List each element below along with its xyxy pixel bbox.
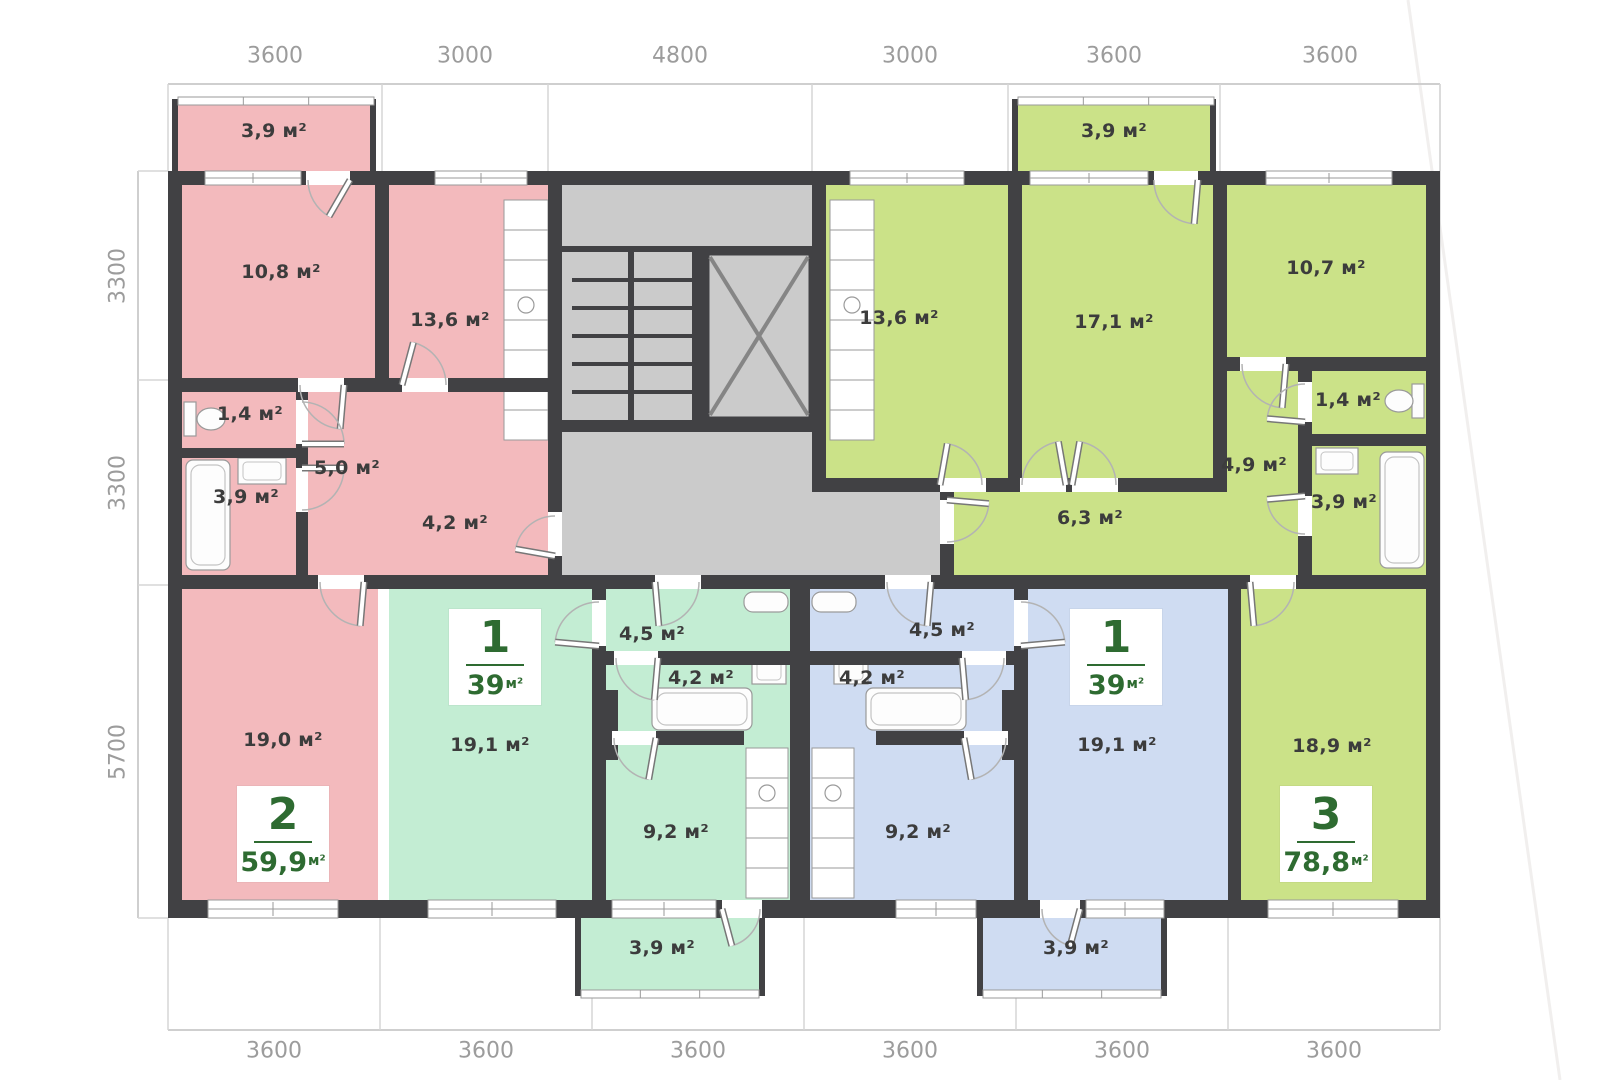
wall (1213, 185, 1227, 478)
floor-plan: 3600 3000 4800 3000 3600 3600 3300 3300 … (0, 0, 1620, 1080)
wall (592, 690, 618, 760)
wall (876, 731, 964, 745)
kitchen-cabinets (746, 838, 788, 868)
balcony-glazing (178, 97, 374, 105)
door-opening (614, 651, 658, 665)
door-opening (402, 378, 448, 392)
kitchen-cabinets (504, 290, 548, 320)
wall (296, 512, 308, 575)
door-opening (612, 731, 656, 745)
room-area-label-living: 19,0 м² (243, 729, 322, 751)
bathtub (652, 688, 752, 730)
wall (182, 448, 296, 458)
badge-divider (466, 664, 524, 666)
wall (168, 171, 1440, 185)
dimension-label-left: 3300 (106, 455, 131, 511)
room-area-label-living: 19,1 м² (450, 734, 529, 756)
door-opening (1298, 496, 1312, 536)
kitchen-cabinets (830, 230, 874, 260)
door-opening (962, 651, 1006, 665)
room-area-label-kitchen: 13,6 м² (859, 307, 938, 329)
kitchen-cabinets (830, 410, 874, 440)
dimension-label-bottom: 3600 (670, 1039, 726, 1064)
bathtub (866, 688, 966, 730)
door-opening (940, 478, 986, 492)
bathtub (186, 460, 230, 570)
kitchen-cabinets (504, 350, 548, 380)
wall (592, 589, 606, 600)
dimension-label-top: 3000 (437, 44, 493, 69)
wall (1296, 575, 1440, 589)
apartment-total-area: 39м² (1088, 671, 1144, 699)
door-opening (1072, 478, 1118, 492)
room-area-label-bathroom: 3,9 м² (1311, 491, 1377, 513)
dimension-label-top: 4800 (652, 44, 708, 69)
door-opening (1240, 357, 1286, 371)
balcony-glazing (983, 990, 1161, 998)
kitchen-cabinets (504, 230, 548, 260)
wall (606, 651, 614, 665)
room-area-label-hall: 5,0 м² (314, 457, 380, 479)
door-opening (298, 378, 344, 392)
door-opening (1154, 171, 1198, 185)
wall (1228, 589, 1241, 900)
door-opening (318, 575, 364, 589)
bathtub (1380, 452, 1424, 568)
room-area-label-bedroom: 10,7 м² (1286, 257, 1365, 279)
apartment-total-area: 78,8м² (1283, 848, 1368, 876)
door-opening (722, 900, 762, 918)
room-area-label-hall: 4,5 м² (619, 623, 685, 645)
wall (1426, 185, 1440, 900)
wall (548, 556, 562, 575)
door-opening (964, 731, 1008, 745)
wardrobe (812, 592, 856, 612)
door-opening (296, 468, 308, 512)
room-area-label-kitchen: 9,2 м² (643, 821, 709, 843)
wall (1210, 99, 1216, 171)
wall (344, 378, 402, 392)
badge-divider (1297, 841, 1355, 843)
kitchen-cabinets (830, 200, 874, 230)
door-opening (592, 600, 606, 646)
apartment-badge-1room-left[interactable]: 1 39м² (449, 609, 541, 705)
wall (1006, 651, 1014, 665)
kitchen-cabinets (812, 748, 854, 778)
dimension-label-bottom: 3600 (246, 1039, 302, 1064)
wardrobe (744, 592, 788, 612)
room-area-label-wc: 1,4 м² (1315, 389, 1381, 411)
wall (977, 918, 983, 996)
room-area-label-bathroom: 3,9 м² (213, 486, 279, 508)
door-opening (940, 500, 954, 544)
room-area-label-bedroom2: 18,9 м² (1292, 735, 1371, 757)
wall (658, 651, 790, 665)
wall (656, 731, 744, 745)
wall (701, 575, 885, 589)
kitchen-cabinets (746, 778, 788, 808)
apartment-badge-2rooms[interactable]: 2 59,9м² (237, 786, 329, 882)
toilet (1412, 384, 1424, 418)
kitchen-cabinets (746, 748, 788, 778)
wall (172, 99, 178, 171)
wall (296, 444, 308, 468)
kitchen-cabinets (812, 838, 854, 868)
room-area-label-balcony: 3,9 м² (1043, 937, 1109, 959)
room-area-label-hall: 4,9 м² (1221, 454, 1287, 476)
floor-plan-drawing (0, 0, 1620, 1080)
toilet (1385, 390, 1413, 412)
wall (168, 575, 318, 589)
wall (628, 252, 634, 420)
dimension-label-top: 3600 (1086, 44, 1142, 69)
room-area-label-bathroom: 4,2 м² (839, 667, 905, 689)
wall (375, 185, 389, 378)
room-area-label-kitchen: 9,2 м² (885, 821, 951, 843)
apartment-total-area: 59,9м² (240, 848, 325, 876)
badge-divider (1087, 664, 1145, 666)
room-area-label-corridor: 6,3 м² (1057, 507, 1123, 529)
wall (759, 918, 765, 996)
room-area-label-bathroom: 4,2 м² (668, 667, 734, 689)
apartment-number: 3 (1311, 793, 1342, 837)
wall (592, 646, 606, 900)
room-area-label-wc: 1,4 м² (217, 403, 283, 425)
wall (1008, 185, 1022, 478)
wall (986, 478, 1020, 492)
apartment-total-area: 39м² (467, 671, 523, 699)
dimension-label-top: 3600 (1302, 44, 1358, 69)
wall (1312, 434, 1426, 446)
wall (1298, 536, 1312, 575)
wall (826, 478, 940, 492)
wall (1298, 371, 1312, 382)
wall (364, 575, 655, 589)
wall (1161, 918, 1167, 996)
door-opening (1040, 900, 1080, 918)
wall (1118, 478, 1227, 492)
wall (940, 544, 954, 575)
apartment-number: 2 (268, 793, 299, 837)
apartment-number: 1 (480, 616, 511, 660)
wall (931, 575, 1250, 589)
room-area-label-kitchen: 13,6 м² (410, 309, 489, 331)
wall (168, 900, 1440, 918)
wall (370, 99, 376, 171)
dimension-label-bottom: 3600 (1094, 1039, 1150, 1064)
kitchen-cabinets (830, 260, 874, 290)
wall (1014, 589, 1028, 600)
kitchen-cabinets (504, 260, 548, 290)
common-corridor (562, 432, 826, 575)
apartment-number: 1 (1101, 616, 1132, 660)
door-opening (655, 575, 701, 589)
room-area-label-balcony: 3,9 м² (629, 937, 695, 959)
kitchen-cabinets (812, 778, 854, 808)
room-area-label-bedroom: 10,8 м² (241, 261, 320, 283)
kitchen-cabinets (504, 200, 548, 230)
wall (1227, 357, 1240, 371)
door-opening (1250, 575, 1296, 589)
wall (548, 185, 562, 512)
kitchen-cabinets (812, 868, 854, 898)
wall (1012, 99, 1018, 171)
balcony-glazing (581, 990, 759, 998)
kitchen-cabinets (746, 868, 788, 898)
room-area-label-balcony: 3,9 м² (1081, 120, 1147, 142)
wall (1298, 422, 1312, 496)
wall (1286, 357, 1426, 371)
badge-divider (254, 841, 312, 843)
apartment-badge-1room-right[interactable]: 1 39м² (1070, 609, 1162, 705)
kitchen-cabinets (830, 380, 874, 410)
room-area-label-balcony: 3,9 м² (241, 120, 307, 142)
kitchen-cabinets (746, 808, 788, 838)
toilet (184, 402, 196, 436)
door-opening (548, 512, 562, 556)
door-opening (1014, 600, 1028, 646)
wall (168, 185, 182, 900)
dimension-label-left: 3300 (106, 248, 131, 304)
door-opening (306, 171, 350, 185)
wall (575, 918, 581, 996)
dimension-label-bottom: 3600 (458, 1039, 514, 1064)
wall (606, 731, 612, 745)
door-opening (1020, 478, 1066, 492)
dimension-label-top: 3000 (882, 44, 938, 69)
wall (810, 651, 962, 665)
wall (790, 589, 810, 900)
room-area-label-corridor: 4,2 м² (422, 512, 488, 534)
dimension-label-left: 5700 (106, 724, 131, 780)
wall (168, 378, 298, 392)
dimension-label-bottom: 3600 (1306, 1039, 1362, 1064)
wall (1002, 690, 1028, 760)
door-opening (885, 575, 931, 589)
door-opening (1298, 382, 1312, 422)
room-area-label-hall: 4,5 м² (909, 619, 975, 641)
wall (448, 378, 548, 392)
balcony-glazing (1018, 97, 1214, 105)
dimension-label-bottom: 3600 (882, 1039, 938, 1064)
stair-landing (562, 185, 812, 246)
dimension-label-top: 3600 (247, 44, 303, 69)
room-area-label-living: 19,1 м² (1077, 734, 1156, 756)
kitchen-cabinets (504, 320, 548, 350)
wall (1014, 646, 1028, 900)
kitchen-cabinets (504, 410, 548, 440)
kitchen-cabinets (830, 350, 874, 380)
room-area-label-living: 17,1 м² (1074, 311, 1153, 333)
kitchen-cabinets (812, 808, 854, 838)
common-corridor (826, 492, 940, 575)
apartment-badge-3rooms[interactable]: 3 78,8м² (1280, 786, 1372, 882)
